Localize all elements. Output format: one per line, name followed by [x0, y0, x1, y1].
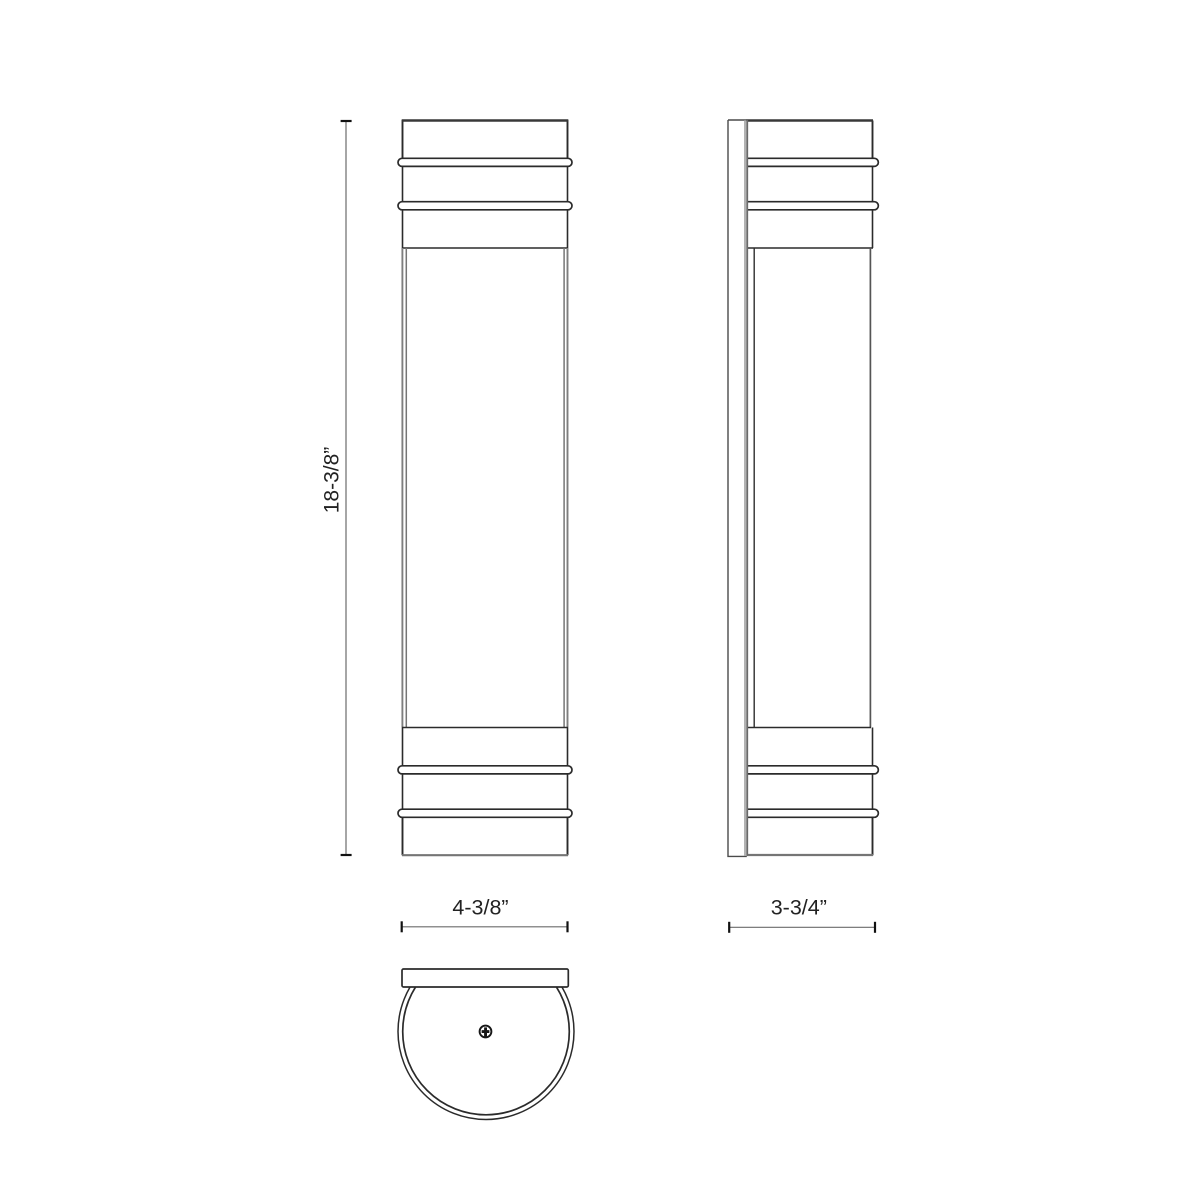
svg-text:18-3/8”: 18-3/8”	[320, 447, 343, 514]
svg-text:3-3/4”: 3-3/4”	[771, 896, 827, 920]
svg-text:4-3/8”: 4-3/8”	[452, 896, 508, 920]
